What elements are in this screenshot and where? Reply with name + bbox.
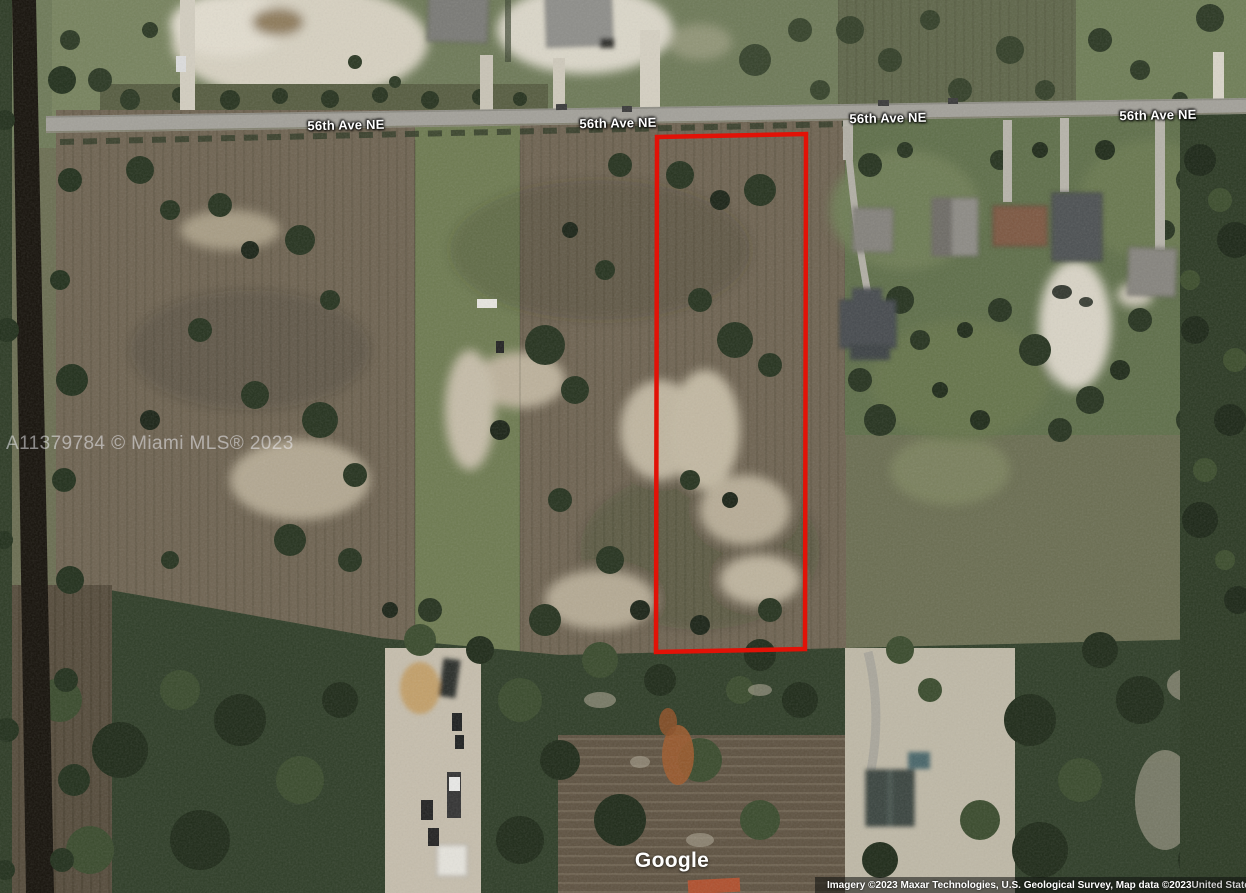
street-label-56th-ave-ne-4: 56th Ave NE (1119, 107, 1196, 124)
street-label-56th-ave-ne-1: 56th Ave NE (307, 117, 384, 134)
street-label-56th-ave-ne-3: 56th Ave NE (849, 110, 926, 127)
attribution-bar: Imagery ©2023 Maxar Technologies, U.S. G… (815, 877, 1246, 893)
mls-watermark: A11379784 © Miami MLS® 2023 (6, 433, 294, 455)
region-label: United States (1192, 880, 1246, 891)
imagery-attribution-text: Imagery ©2023 Maxar Technologies, U.S. G… (827, 880, 1192, 891)
satellite-map-canvas[interactable]: 56th Ave NE 56th Ave NE 56th Ave NE 56th… (0, 0, 1246, 893)
street-label-56th-ave-ne-2: 56th Ave NE (579, 115, 656, 132)
google-logo[interactable]: Google (635, 849, 709, 873)
